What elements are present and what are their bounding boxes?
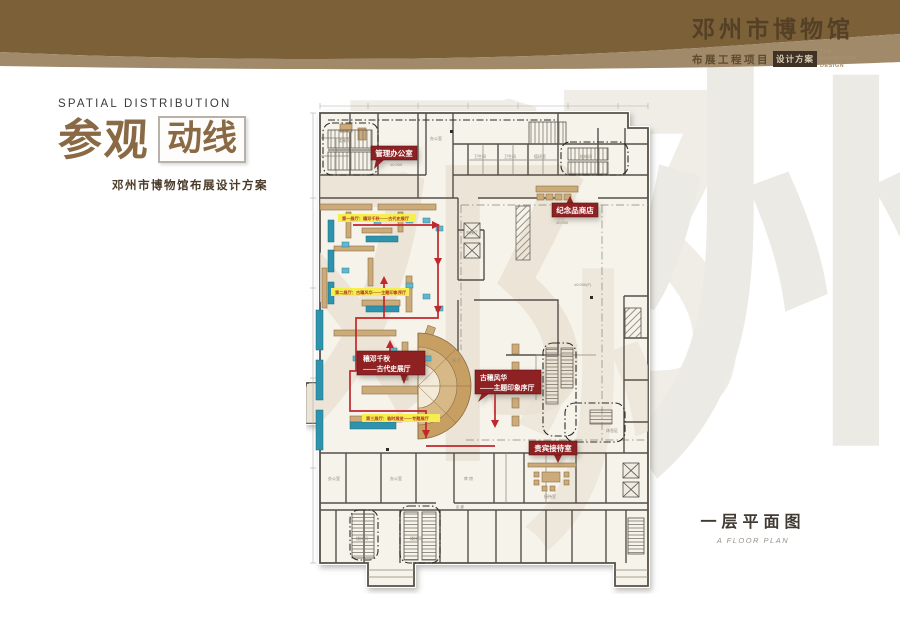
design-plan-badge: 设计方案 [773, 51, 817, 67]
svg-text:接待室: 接待室 [544, 493, 556, 499]
header-title-group: 邓州市博物馆 布展工程项目 设计方案 THE EXHIBITION DESIGN [692, 10, 882, 70]
svg-text:办公室: 办公室 [430, 135, 442, 141]
slide-page: 邓 州 邓州市博物馆 布展工程项目 设计方案 THE EXHIBITION DE… [0, 0, 900, 636]
title-subtitle: 邓州市博物馆布展设计方案 [58, 177, 268, 193]
svg-text:第一展厅：穰邓千秋——古代史展厅: 第一展厅：穰邓千秋——古代史展厅 [342, 215, 410, 222]
plan-caption-cn: 一层平面图 [688, 508, 818, 532]
svg-text:卫生间: 卫生间 [504, 153, 516, 159]
svg-text:管理办公室: 管理办公室 [375, 148, 413, 158]
svg-text:——主题印象序厅: ——主题印象序厅 [480, 383, 535, 392]
title-main-calligraphy: 参观 [57, 119, 151, 163]
plan-caption: 一层平面图 A FLOOR PLAN [688, 508, 818, 545]
section-title-block: SPATIAL DISTRIBUTION 参观 动线 邓州市博物馆布展设计方案 [58, 98, 268, 193]
svg-text:±0.000: ±0.000 [390, 162, 403, 167]
svg-text:办公室: 办公室 [328, 475, 340, 481]
exterior-ramp-right [625, 308, 641, 338]
svg-text:±0.000(F): ±0.000(F) [574, 282, 592, 287]
svg-text:±0.000: ±0.000 [556, 220, 569, 225]
svg-text:楼梯间: 楼梯间 [338, 137, 350, 143]
svg-text:贵宾接待室: 贵宾接待室 [534, 443, 572, 453]
header-subtitle-row: 布展工程项目 设计方案 THE EXHIBITION DESIGN [692, 49, 882, 70]
svg-text:——古代史展厅: ——古代史展厅 [363, 364, 411, 373]
header-band: 邓州市博物馆 布展工程项目 设计方案 THE EXHIBITION DESIGN [0, 0, 900, 72]
plan-caption-en: A FLOOR PLAN [688, 536, 818, 545]
stair-top-left [328, 130, 372, 170]
svg-text:序 厅: 序 厅 [452, 357, 461, 363]
title-boxed-word: 动线 [158, 116, 246, 163]
svg-text:走 廊: 走 廊 [456, 504, 464, 509]
svg-text:第三展厅：临时展览——专题展厅: 第三展厅：临时展览——专题展厅 [366, 415, 430, 422]
svg-text:古穰风华: 古穰风华 [480, 373, 507, 382]
svg-text:穰邓千秋: 穰邓千秋 [363, 354, 390, 363]
svg-text:楼梯间: 楼梯间 [580, 153, 592, 159]
svg-text:第二展厅：古穰风华——主题印象序厅: 第二展厅：古穰风华——主题印象序厅 [335, 289, 407, 296]
svg-text:办公室: 办公室 [390, 475, 402, 481]
floor-plan: 邓 州 [306, 100, 660, 594]
project-label: 布展工程项目 [692, 52, 770, 67]
stair-bottom-right [628, 518, 644, 554]
exterior-steps-top-right [529, 122, 566, 144]
eyebrow-text: SPATIAL DISTRIBUTION [58, 98, 268, 110]
museum-title: 邓州市博物馆 [692, 10, 882, 44]
svg-text:休息区: 休息区 [606, 427, 618, 433]
svg-text:楼梯间: 楼梯间 [410, 535, 422, 541]
subtitle-english: THE EXHIBITION DESIGN [820, 49, 864, 70]
led-wall [516, 206, 530, 260]
svg-text:电梯厅: 电梯厅 [466, 229, 478, 235]
svg-text:卫生间: 卫生间 [474, 153, 486, 159]
svg-text:值班室: 值班室 [534, 153, 546, 159]
svg-text:楼梯间: 楼梯间 [356, 535, 368, 541]
svg-text:纪念品商店: 纪念品商店 [556, 205, 594, 215]
section-title-row: 参观 动线 [58, 116, 268, 163]
svg-text:库 房: 库 房 [464, 475, 473, 481]
